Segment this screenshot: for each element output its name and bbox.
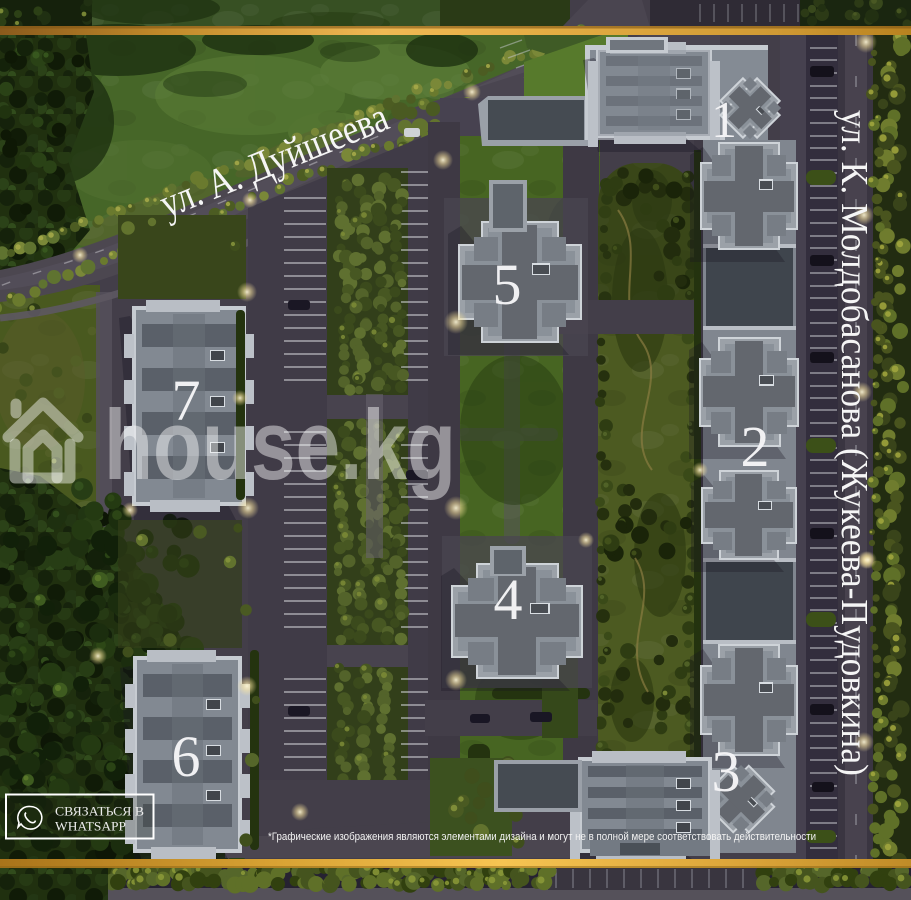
- svg-text:3: 3: [712, 739, 741, 804]
- svg-text:5: 5: [493, 252, 522, 317]
- svg-text:*Графические изображения являю: *Графические изображения являются элемен…: [268, 831, 816, 843]
- svg-text:6: 6: [172, 724, 201, 789]
- svg-text:house.kg: house.kg: [104, 389, 456, 500]
- svg-text:СВЯЗАТЬСЯ В: СВЯЗАТЬСЯ В: [55, 804, 144, 819]
- svg-text:ул. К. Молдобасанова (Жукеева-: ул. К. Молдобасанова (Жукеева-Пудовкина): [833, 110, 875, 776]
- svg-text:2: 2: [741, 414, 770, 479]
- svg-text:WHATSAPP: WHATSAPP: [55, 819, 126, 834]
- svg-text:4: 4: [494, 567, 523, 632]
